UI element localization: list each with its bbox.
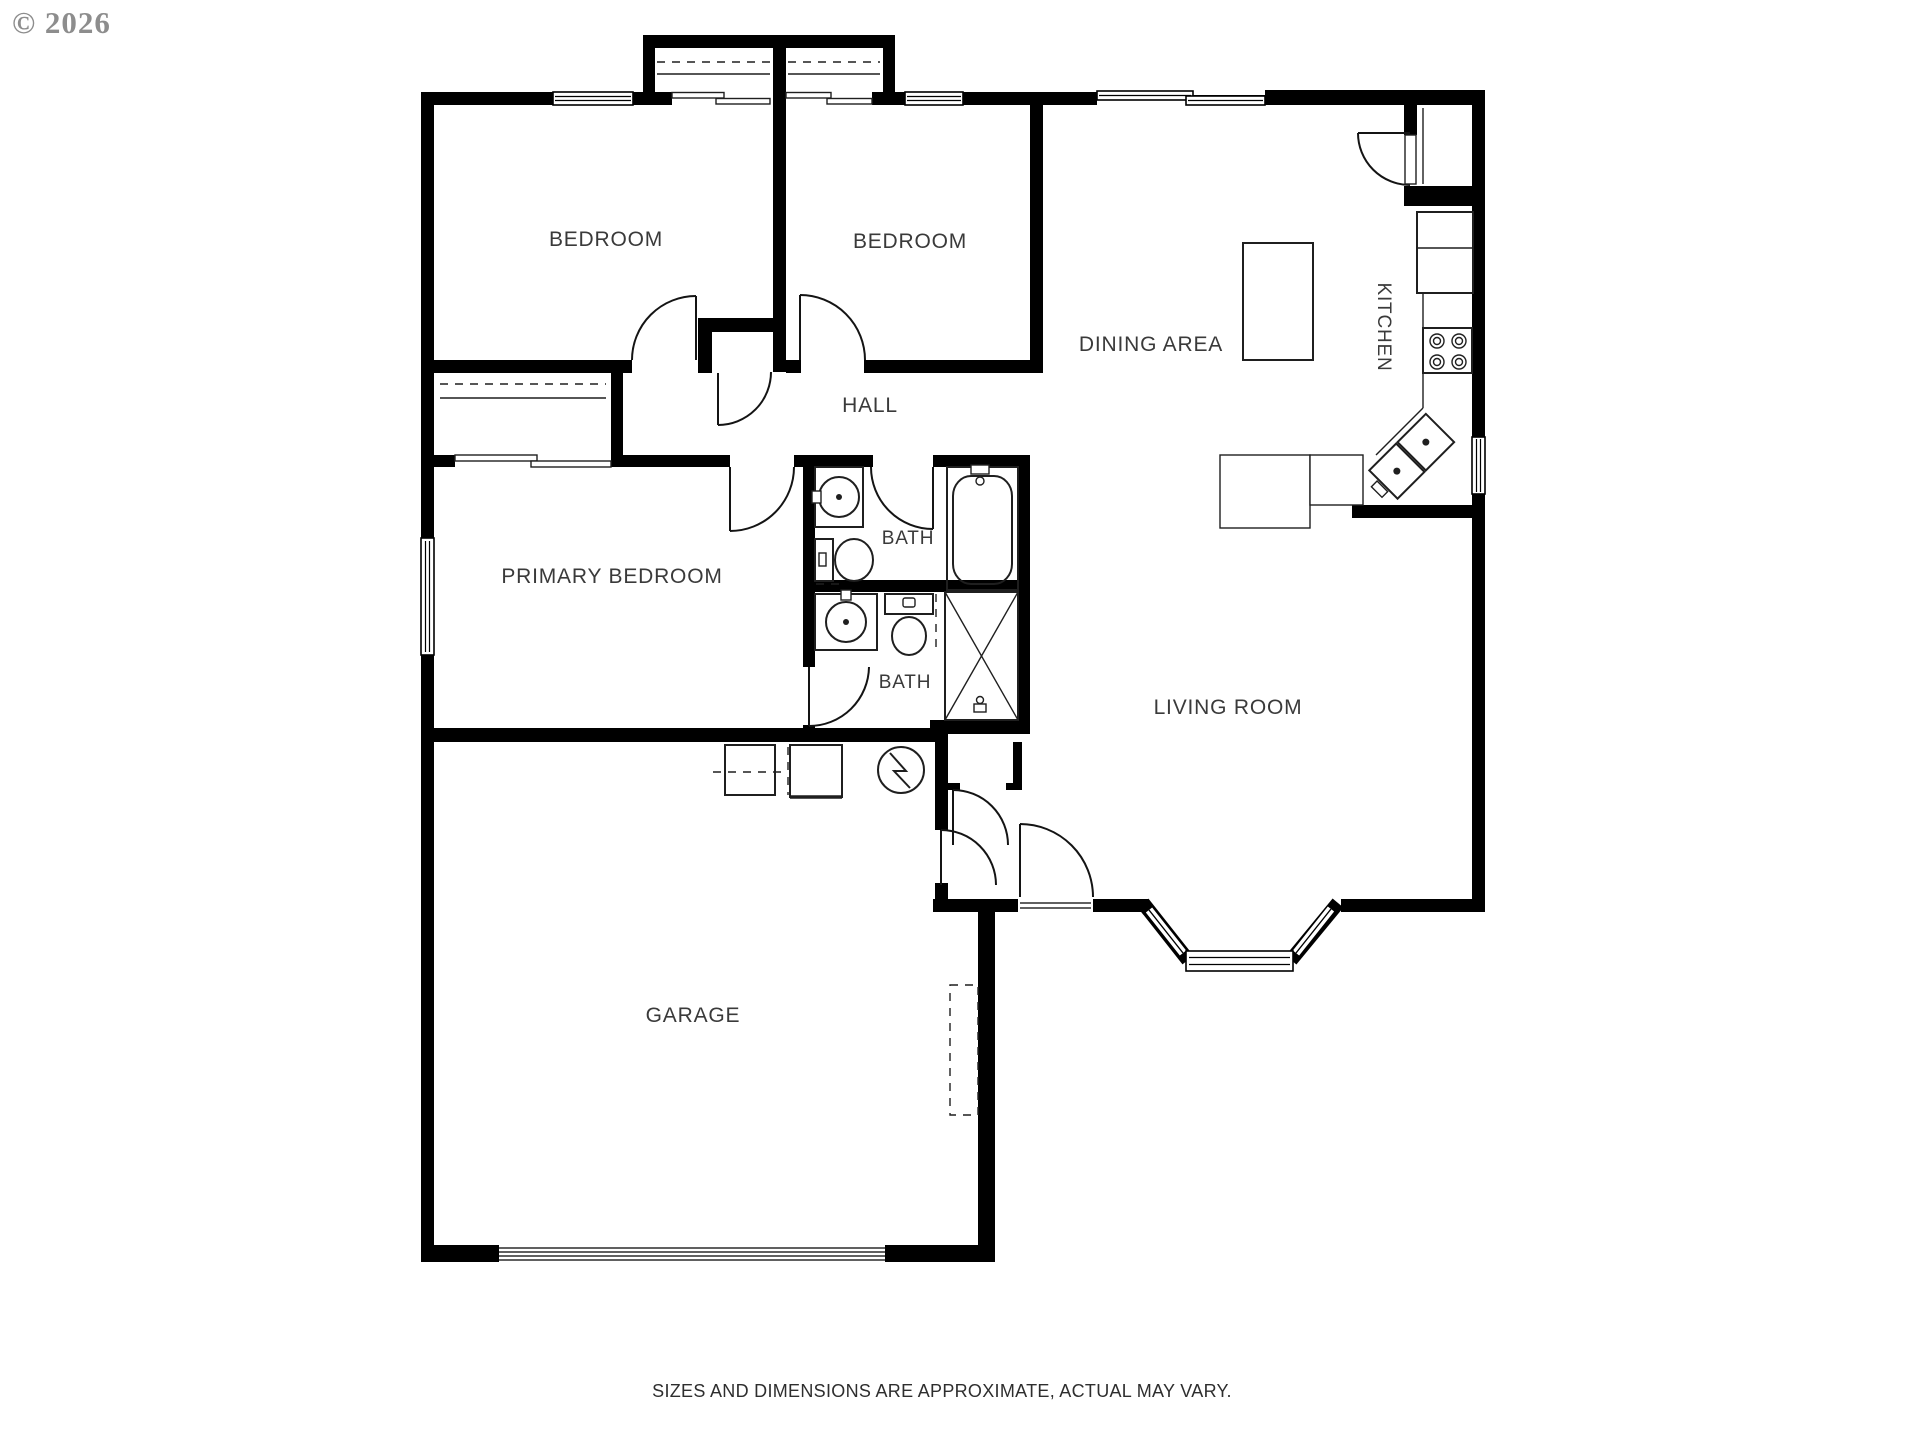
window-icon <box>1097 91 1193 100</box>
garage-door-icon <box>499 1245 885 1262</box>
window-icon <box>553 92 633 105</box>
room-label-bath-primary: BATH <box>879 672 931 693</box>
window-icon <box>421 538 434 655</box>
stove-icon <box>1423 328 1472 373</box>
kitchen-island-icon <box>1243 243 1313 360</box>
room-label-garage: GARAGE <box>646 1004 741 1027</box>
floor-plan: BEDROOM BEDROOM DINING AREA KITCHEN HALL… <box>0 0 1920 1440</box>
room-label-dining-area: DINING AREA <box>1079 333 1223 356</box>
room-label-kitchen: KITCHEN <box>1373 283 1394 372</box>
floor-plan-page: BEDROOM BEDROOM DINING AREA KITCHEN HALL… <box>0 0 1920 1440</box>
window-icon <box>1472 437 1485 494</box>
room-label-bedroom-2: BEDROOM <box>853 230 967 253</box>
room-label-primary-bedroom: PRIMARY BEDROOM <box>501 565 722 588</box>
copyright-watermark: © 2026 <box>12 5 111 40</box>
attic-access <box>950 985 978 1115</box>
room-label-bedroom-1: BEDROOM <box>549 228 663 251</box>
room-label-hall: HALL <box>842 394 898 417</box>
window-icon <box>1186 96 1265 105</box>
disclaimer-text: SIZES AND DIMENSIONS ARE APPROXIMATE, AC… <box>652 1381 1232 1401</box>
room-label-bath-hall: BATH <box>882 528 934 549</box>
room-label-living-room: LIVING ROOM <box>1154 696 1303 719</box>
window-icon <box>905 92 963 105</box>
